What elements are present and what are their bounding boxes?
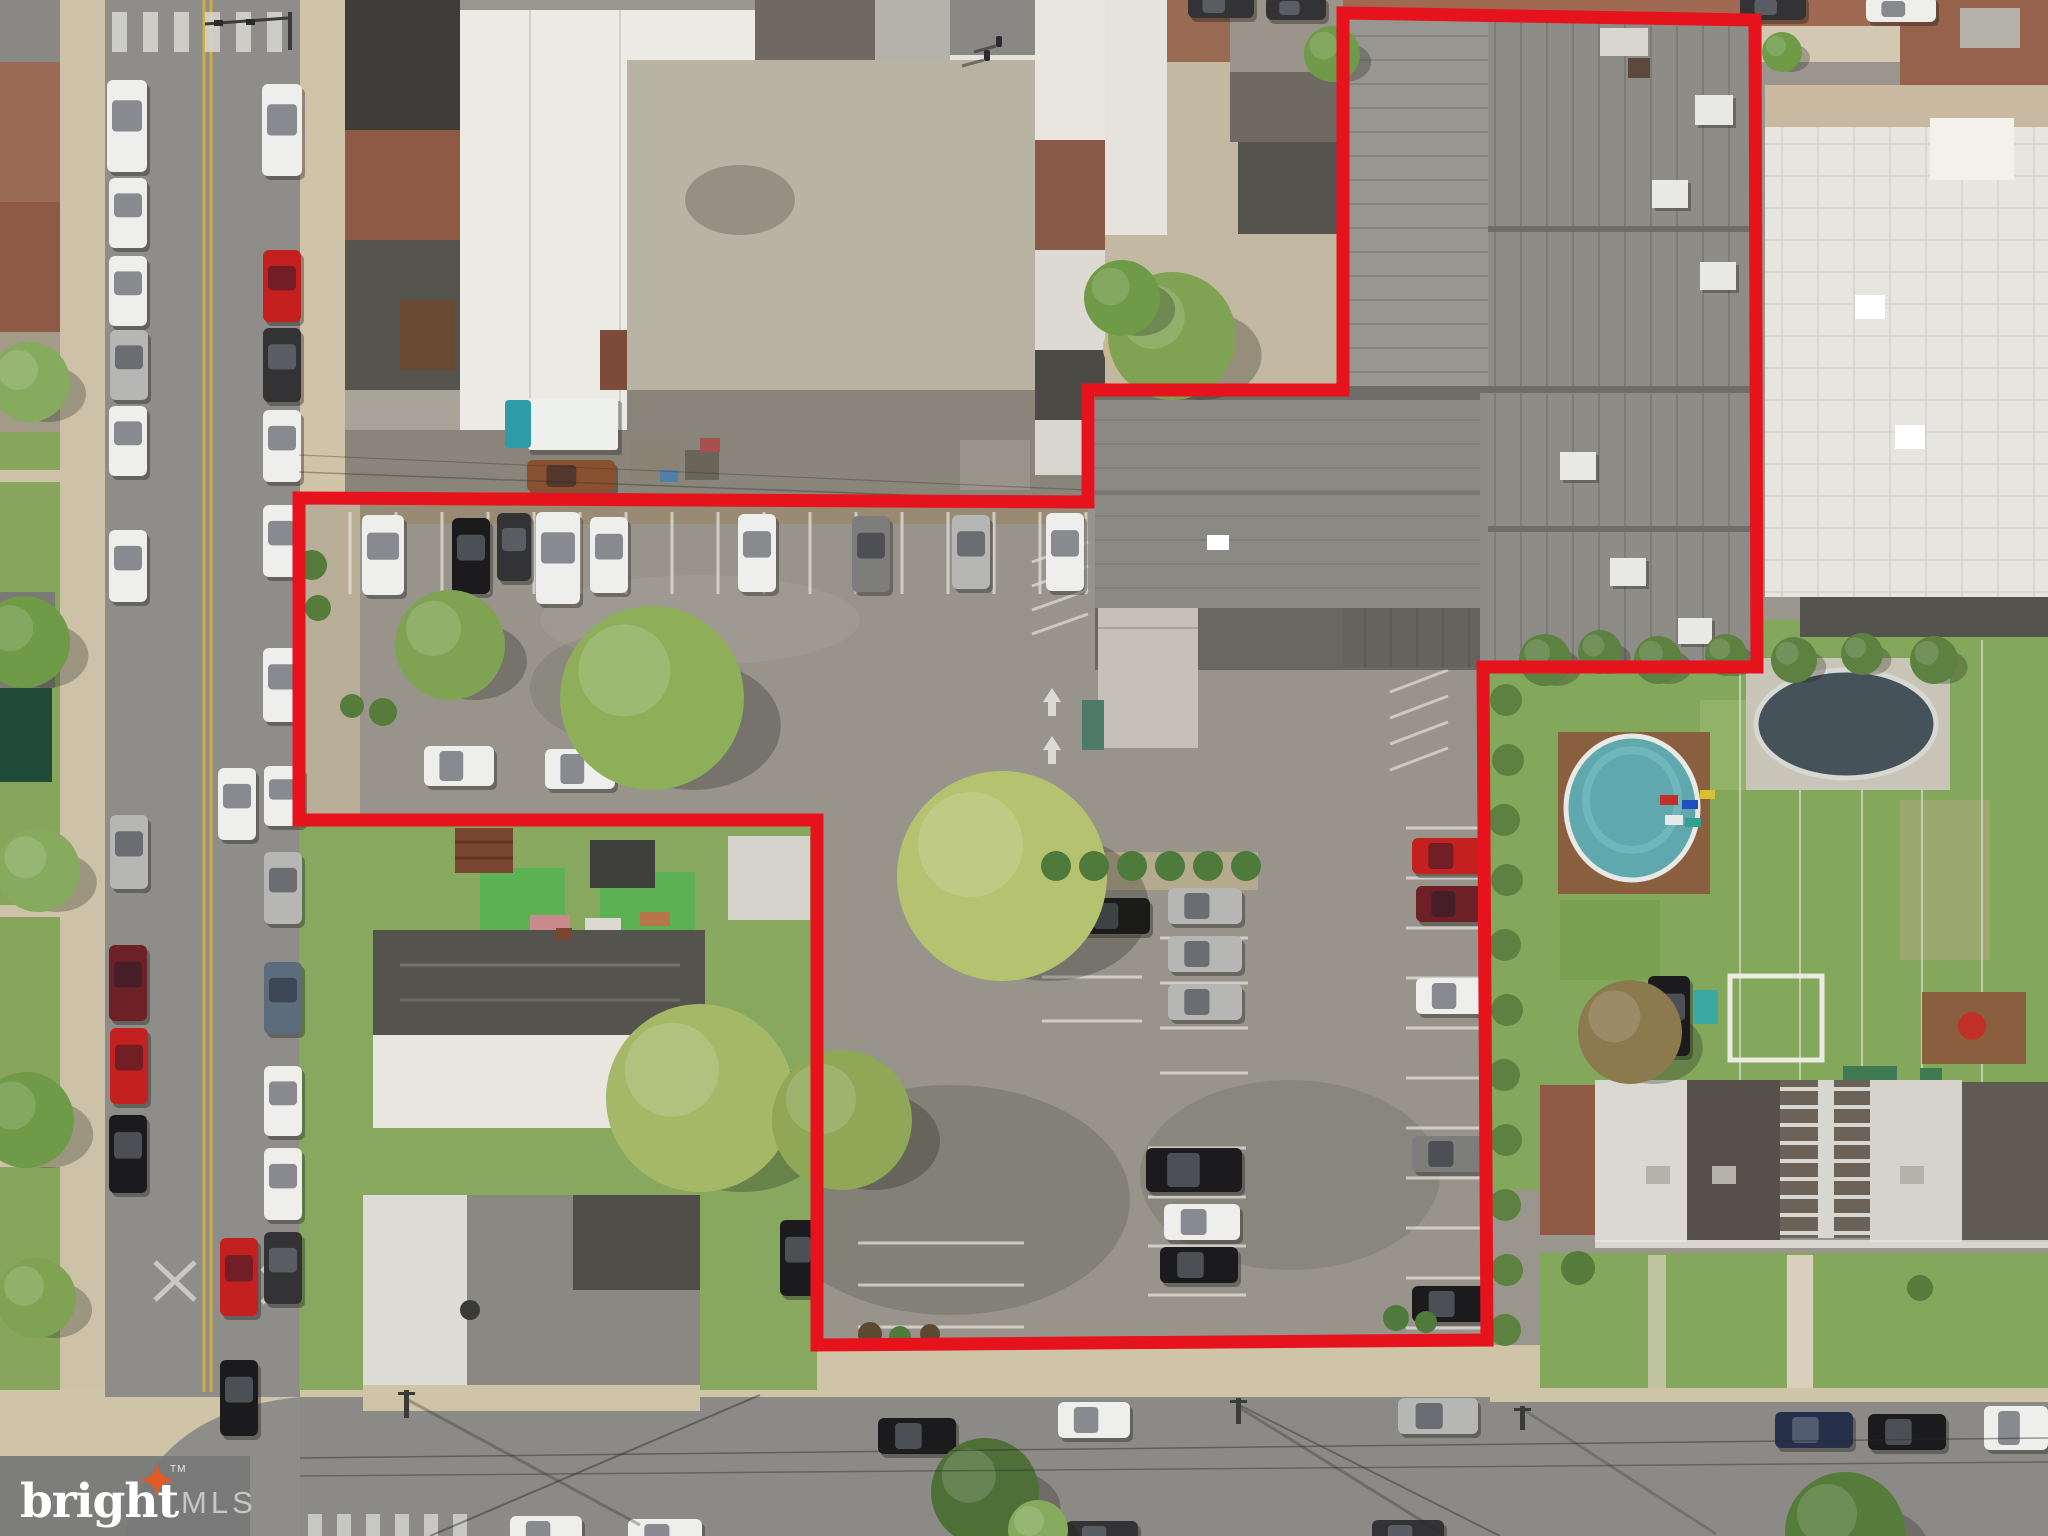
car [497, 513, 534, 585]
car [1412, 838, 1489, 878]
car [1866, 0, 1939, 26]
row-homes [1490, 1066, 2048, 1402]
bush [1491, 994, 1523, 1026]
car [264, 962, 305, 1038]
car [264, 1148, 305, 1224]
watermark-suffix: MLS [181, 1485, 257, 1520]
bush [1231, 851, 1261, 881]
box-truck [505, 398, 622, 455]
brick-apartment [0, 62, 60, 202]
car [1266, 0, 1329, 24]
bush [305, 595, 331, 621]
front-walk [1787, 1255, 1813, 1390]
house-2 [363, 1195, 700, 1385]
car [1412, 1136, 1489, 1176]
gazebo [590, 840, 655, 888]
car [110, 815, 151, 893]
car [264, 852, 305, 928]
chimney [1628, 58, 1650, 78]
car [1164, 1204, 1243, 1244]
pedestrian [984, 50, 990, 61]
bush [1561, 1251, 1595, 1285]
car [510, 1516, 585, 1536]
lot-west-walk [305, 498, 360, 820]
car [1168, 936, 1245, 976]
far-right-building [1765, 0, 2048, 637]
car [263, 328, 304, 406]
bush [1489, 929, 1521, 961]
aerial-scene: bright TM MLS [0, 0, 2048, 1536]
car [218, 768, 259, 844]
car [952, 515, 993, 593]
car [1168, 888, 1245, 928]
car [263, 410, 304, 486]
car [452, 518, 493, 598]
bush [1079, 851, 1109, 881]
watermark-tm: TM [170, 1464, 186, 1475]
car [424, 746, 497, 790]
bush [1488, 804, 1520, 836]
garden-shed [455, 828, 513, 873]
bush [1117, 851, 1147, 881]
bush [1041, 851, 1071, 881]
car [109, 1115, 150, 1197]
bush [1490, 684, 1522, 716]
bush [1415, 1311, 1437, 1333]
bush [1489, 1189, 1521, 1221]
car [107, 80, 150, 176]
car [852, 516, 893, 596]
tarp [1694, 990, 1718, 1024]
car [109, 530, 150, 606]
car [1775, 1412, 1856, 1452]
bush [369, 698, 397, 726]
car [1168, 984, 1245, 1024]
bush [1488, 1059, 1520, 1091]
patio-umbrella-red [1958, 1012, 1986, 1040]
pedestrian [996, 36, 1002, 47]
bush [1491, 864, 1523, 896]
bush [1489, 1314, 1521, 1346]
traffic-light [246, 19, 255, 25]
car [262, 84, 305, 180]
concrete-yard [627, 60, 1040, 390]
car [628, 1519, 705, 1536]
traffic-light [214, 20, 223, 26]
car [1058, 1402, 1133, 1442]
kiosk [1082, 700, 1104, 750]
car [1398, 1398, 1481, 1438]
bush [1907, 1275, 1933, 1301]
car [1984, 1406, 2048, 1454]
car [264, 1066, 305, 1140]
bush [1383, 1305, 1409, 1331]
car [109, 256, 150, 330]
concrete-pad [728, 836, 810, 920]
bush [1155, 851, 1185, 881]
bush [1491, 1254, 1523, 1286]
bush [1492, 744, 1524, 776]
car [1160, 1247, 1241, 1287]
traffic-signal-pole [288, 12, 292, 50]
aerial-photo: bright TM MLS [0, 0, 2048, 1536]
car [878, 1418, 959, 1458]
green-awning [0, 688, 52, 782]
car [220, 1360, 261, 1440]
car [109, 406, 150, 480]
car [264, 1232, 305, 1308]
roof-hatch [1600, 28, 1648, 56]
bush [340, 694, 364, 718]
car [220, 1238, 261, 1320]
bush [1490, 1124, 1522, 1156]
porch-awning [1920, 1068, 1942, 1080]
car [110, 330, 151, 404]
porch-awning [1843, 1066, 1897, 1080]
watermark: bright TM MLS [0, 1456, 257, 1536]
car [263, 250, 304, 326]
car [738, 514, 779, 596]
car [109, 945, 150, 1025]
car [590, 517, 631, 597]
car [1868, 1414, 1949, 1454]
car [1188, 0, 1257, 22]
car [1046, 513, 1087, 595]
car [1146, 1148, 1245, 1196]
car [109, 178, 150, 252]
covered-pool [1756, 670, 1936, 778]
bush [1193, 851, 1223, 881]
car [110, 1028, 151, 1108]
car [536, 512, 583, 608]
car [362, 515, 407, 599]
